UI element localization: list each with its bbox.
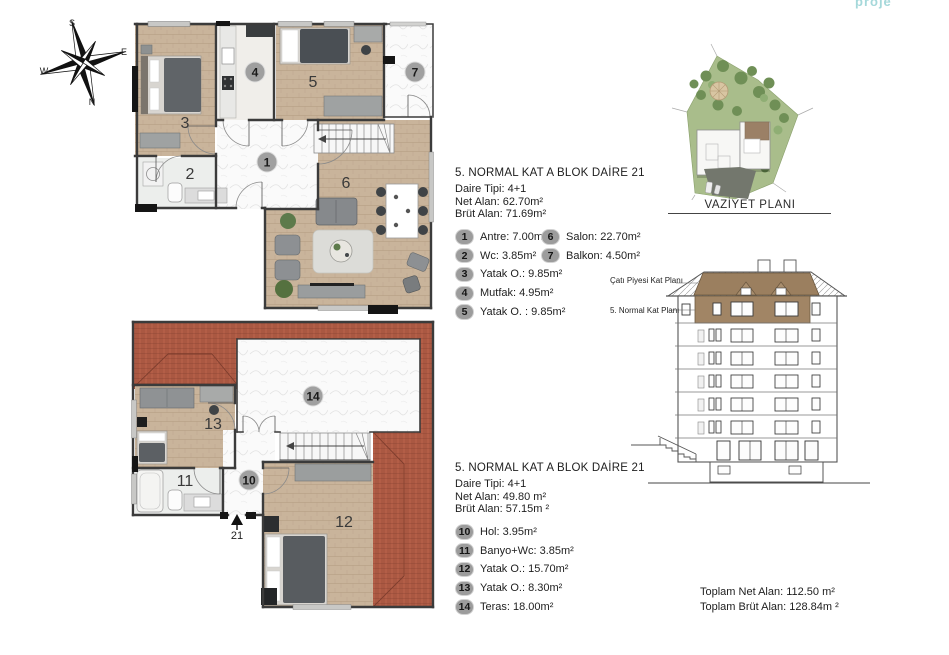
compass-star-icon xyxy=(28,8,138,118)
room-number-yatak5: 5 xyxy=(309,74,318,92)
unit-net-area: Net Alan: 62.70m² xyxy=(455,196,640,209)
unit-brut-area: Brüt Alan: 57.15m ² xyxy=(455,503,640,516)
legend-item: 6Salon: 22.70m² xyxy=(541,228,641,247)
room-number-yatak12: 12 xyxy=(335,514,353,532)
total-brut-area: Toplam Brüt Alan: 128.84m ² xyxy=(700,600,839,615)
legend-item: 10Hol: 3.95m² xyxy=(455,523,640,542)
total-net-area: Toplam Net Alan: 112.50 m² xyxy=(700,585,839,600)
roof-right-strip xyxy=(420,339,433,432)
building-elevation xyxy=(608,252,943,497)
drawing-sheet: proje S E W N xyxy=(0,0,949,655)
roof-left xyxy=(133,322,240,389)
room-number-balkon: 7 xyxy=(405,62,426,83)
compass-n: N xyxy=(89,97,96,107)
room-number-yatak3: 3 xyxy=(181,115,190,133)
room-number-teras: 14 xyxy=(303,386,324,407)
unit-brut-area: Brüt Alan: 71.69m² xyxy=(455,208,640,221)
staircase xyxy=(314,124,394,153)
site-plan xyxy=(660,38,840,200)
floor-plan-normal: 1 2 3 4 5 6 7 xyxy=(128,12,453,317)
room-number-mutfak: 4 xyxy=(245,62,266,83)
room-number-yatak13: 13 xyxy=(204,416,222,434)
floor-plan-roof: 10 11 12 13 14 21 xyxy=(128,318,453,618)
entry-arrow-icon xyxy=(231,514,243,530)
legend-item: 11Banyo+Wc: 3.85m² xyxy=(455,541,640,560)
totals: Toplam Net Alan: 112.50 m² Toplam Brüt A… xyxy=(700,585,839,615)
entry-number-label: 21 xyxy=(231,530,243,542)
compass-s: S xyxy=(69,18,75,28)
site-gazebo xyxy=(710,82,728,100)
room-number-salon: 6 xyxy=(342,175,351,193)
compass-e: E xyxy=(121,47,127,57)
site-plan-title: VAZİYET PLANI xyxy=(665,199,835,211)
room-teras-floor xyxy=(237,339,420,432)
room-number-banyo: 11 xyxy=(177,473,194,491)
site-road xyxy=(704,167,756,199)
legend-item: 13Yatak O.: 8.30m² xyxy=(455,579,640,598)
staircase-roof xyxy=(280,433,370,460)
room-number-wc: 2 xyxy=(186,166,195,184)
room-number-antre: 1 xyxy=(257,152,278,173)
room-number-hol: 10 xyxy=(239,470,260,491)
unit-title: 5. NORMAL KAT A BLOK DAİRE 21 xyxy=(455,167,640,179)
site-plan-underline xyxy=(668,213,831,214)
elevation-label-normal: 5. Normal Kat Planı xyxy=(610,306,679,315)
room-legend-roof: 10Hol: 3.95m² 11Banyo+Wc: 3.85m² 12Yatak… xyxy=(455,523,640,617)
unit-type: Daire Tipi: 4+1 xyxy=(455,183,640,196)
elevation-label-cati: Çatı Piyesi Kat Planı xyxy=(610,276,683,285)
elevation-mansard xyxy=(694,273,819,295)
roof-right xyxy=(373,432,433,608)
compass-w: W xyxy=(40,66,49,76)
legend-item: 12Yatak O.: 15.70m² xyxy=(455,560,640,579)
compass-rose: S E W N xyxy=(28,8,138,118)
legend-item: 14Teras: 18.00m² xyxy=(455,598,640,617)
logo-text: proje xyxy=(855,0,892,9)
